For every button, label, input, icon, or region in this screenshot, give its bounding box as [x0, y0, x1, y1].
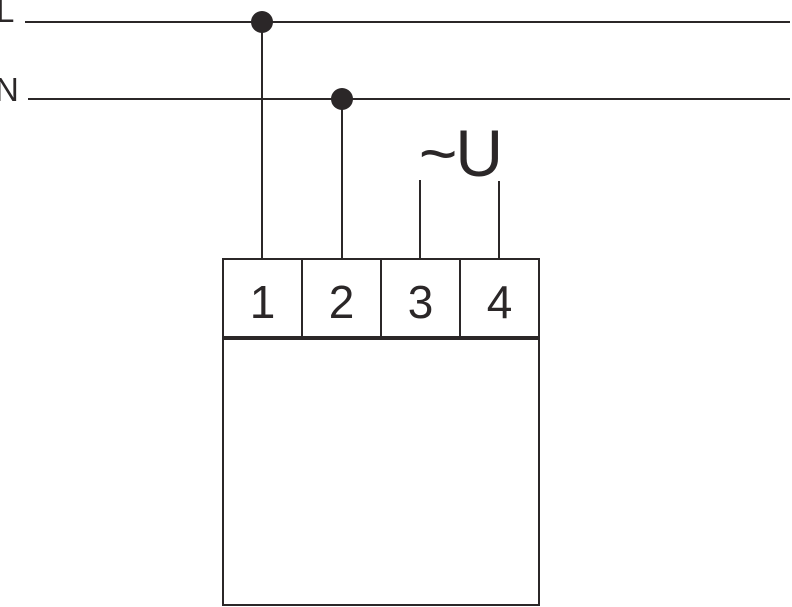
line-n-wire	[28, 98, 790, 100]
terminal-2: 2	[303, 260, 382, 336]
terminal-1: 1	[224, 260, 303, 336]
supply-voltage-label: ~U	[392, 120, 528, 186]
line-l-wire	[25, 21, 790, 23]
wire-u-to-terminal-3	[419, 180, 421, 258]
line-label: L	[0, 0, 14, 27]
wire-n-to-terminal-2	[341, 99, 343, 258]
wiring-diagram: L N ~U 1 2 3 4	[0, 0, 792, 607]
neutral-label: N	[0, 73, 19, 106]
device-body	[222, 338, 540, 606]
terminal-strip: 1 2 3 4	[222, 258, 540, 338]
wire-l-to-terminal-1	[261, 22, 263, 258]
terminal-3: 3	[382, 260, 461, 336]
terminal-4: 4	[461, 260, 538, 336]
wire-u-to-terminal-4	[498, 181, 500, 258]
